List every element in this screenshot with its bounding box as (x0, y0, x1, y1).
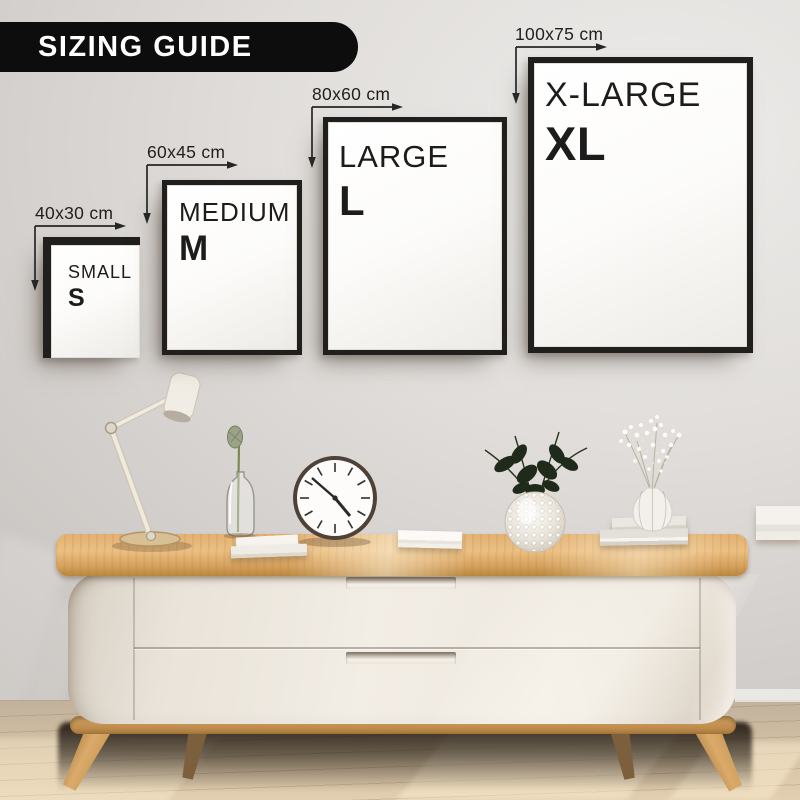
cabinet-seam (699, 578, 701, 720)
flower-bottle (213, 424, 259, 540)
wall-clock (289, 450, 381, 548)
desk-lamp (85, 370, 215, 555)
dimension-arrow-large (306, 101, 410, 179)
book (398, 530, 462, 549)
banner-title: SIZING GUIDE (38, 31, 253, 64)
baseboard (735, 689, 800, 702)
dimension-arrow-xlarge (510, 41, 614, 119)
book (756, 506, 800, 540)
dimension-arrow-medium (141, 159, 245, 237)
size-abbr: XL (545, 120, 701, 167)
cabinet-seam (133, 578, 135, 720)
white-vase-with-flowers (595, 405, 707, 535)
sizing-guide-scene: SIZING GUIDE 40x30 cm 60x45 cm 80x60 cm … (0, 0, 800, 800)
drawer-handle-top (346, 577, 456, 589)
size-abbr: L (339, 180, 449, 222)
drawer-handle-bottom (346, 652, 456, 664)
bubble-glass-vase (475, 412, 597, 554)
dimension-arrow-small (29, 220, 133, 298)
sizing-guide-banner: SIZING GUIDE (0, 22, 358, 72)
drawer-divider (134, 647, 700, 649)
